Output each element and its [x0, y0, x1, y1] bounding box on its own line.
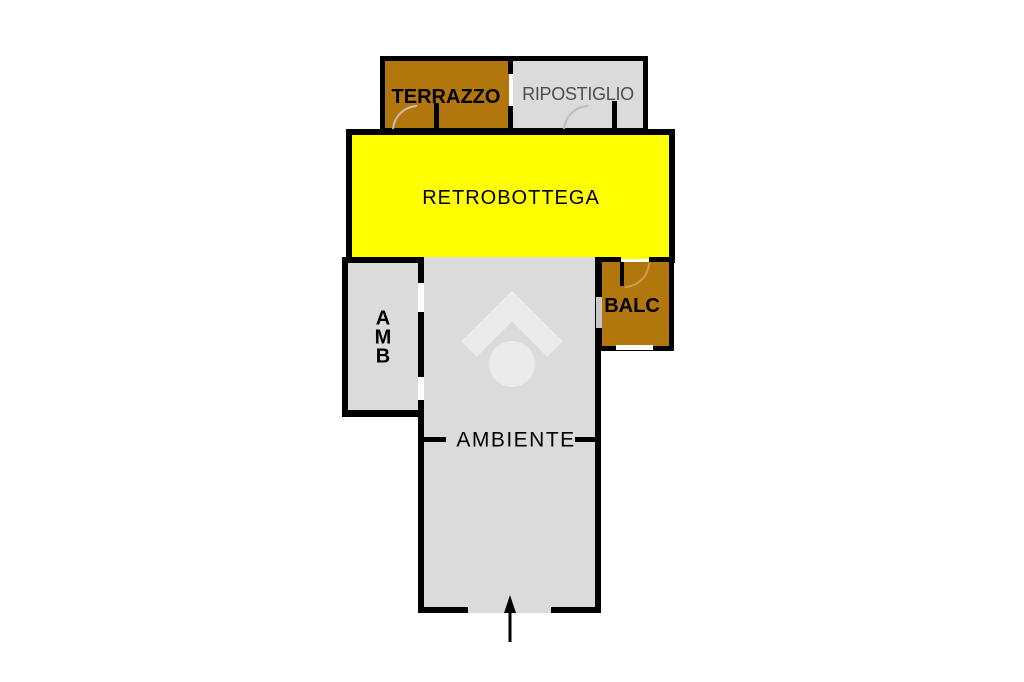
amb-partition-segment-top [418, 257, 424, 283]
ambiente-partition-stub-right [575, 437, 597, 442]
ambiente-left-wall [418, 400, 424, 613]
terrazzo-label: TERRAZZO [392, 86, 501, 108]
terrazzo-ripostiglio-divider-top [508, 56, 513, 74]
amb-left-wall [342, 257, 348, 417]
amb-label: A M B [375, 310, 392, 367]
ambiente-entrance-threshold [465, 607, 552, 613]
balc-label: BALC [604, 295, 660, 317]
ambiente-bottom-wall-right [551, 607, 601, 613]
ambiente-partition-stub-left [424, 437, 446, 442]
amb-bottom-wall [342, 410, 424, 417]
balc-window-bottom [616, 345, 653, 350]
ripostiglio-label: RIPOSTIGLIO [522, 85, 634, 105]
balc-window-left [596, 297, 602, 328]
ambiente-bottom-wall-left [418, 607, 468, 613]
floor-plan: TERRAZZO RIPOSTIGLIO RETROBOTTEGA A M B … [0, 0, 1024, 682]
amb-label-line-3: B [375, 348, 392, 367]
retrobottega-label: RETROBOTTEGA [422, 187, 600, 209]
ambiente-label: AMBIENTE [456, 428, 575, 451]
amb-partition-segment-middle [418, 312, 424, 377]
